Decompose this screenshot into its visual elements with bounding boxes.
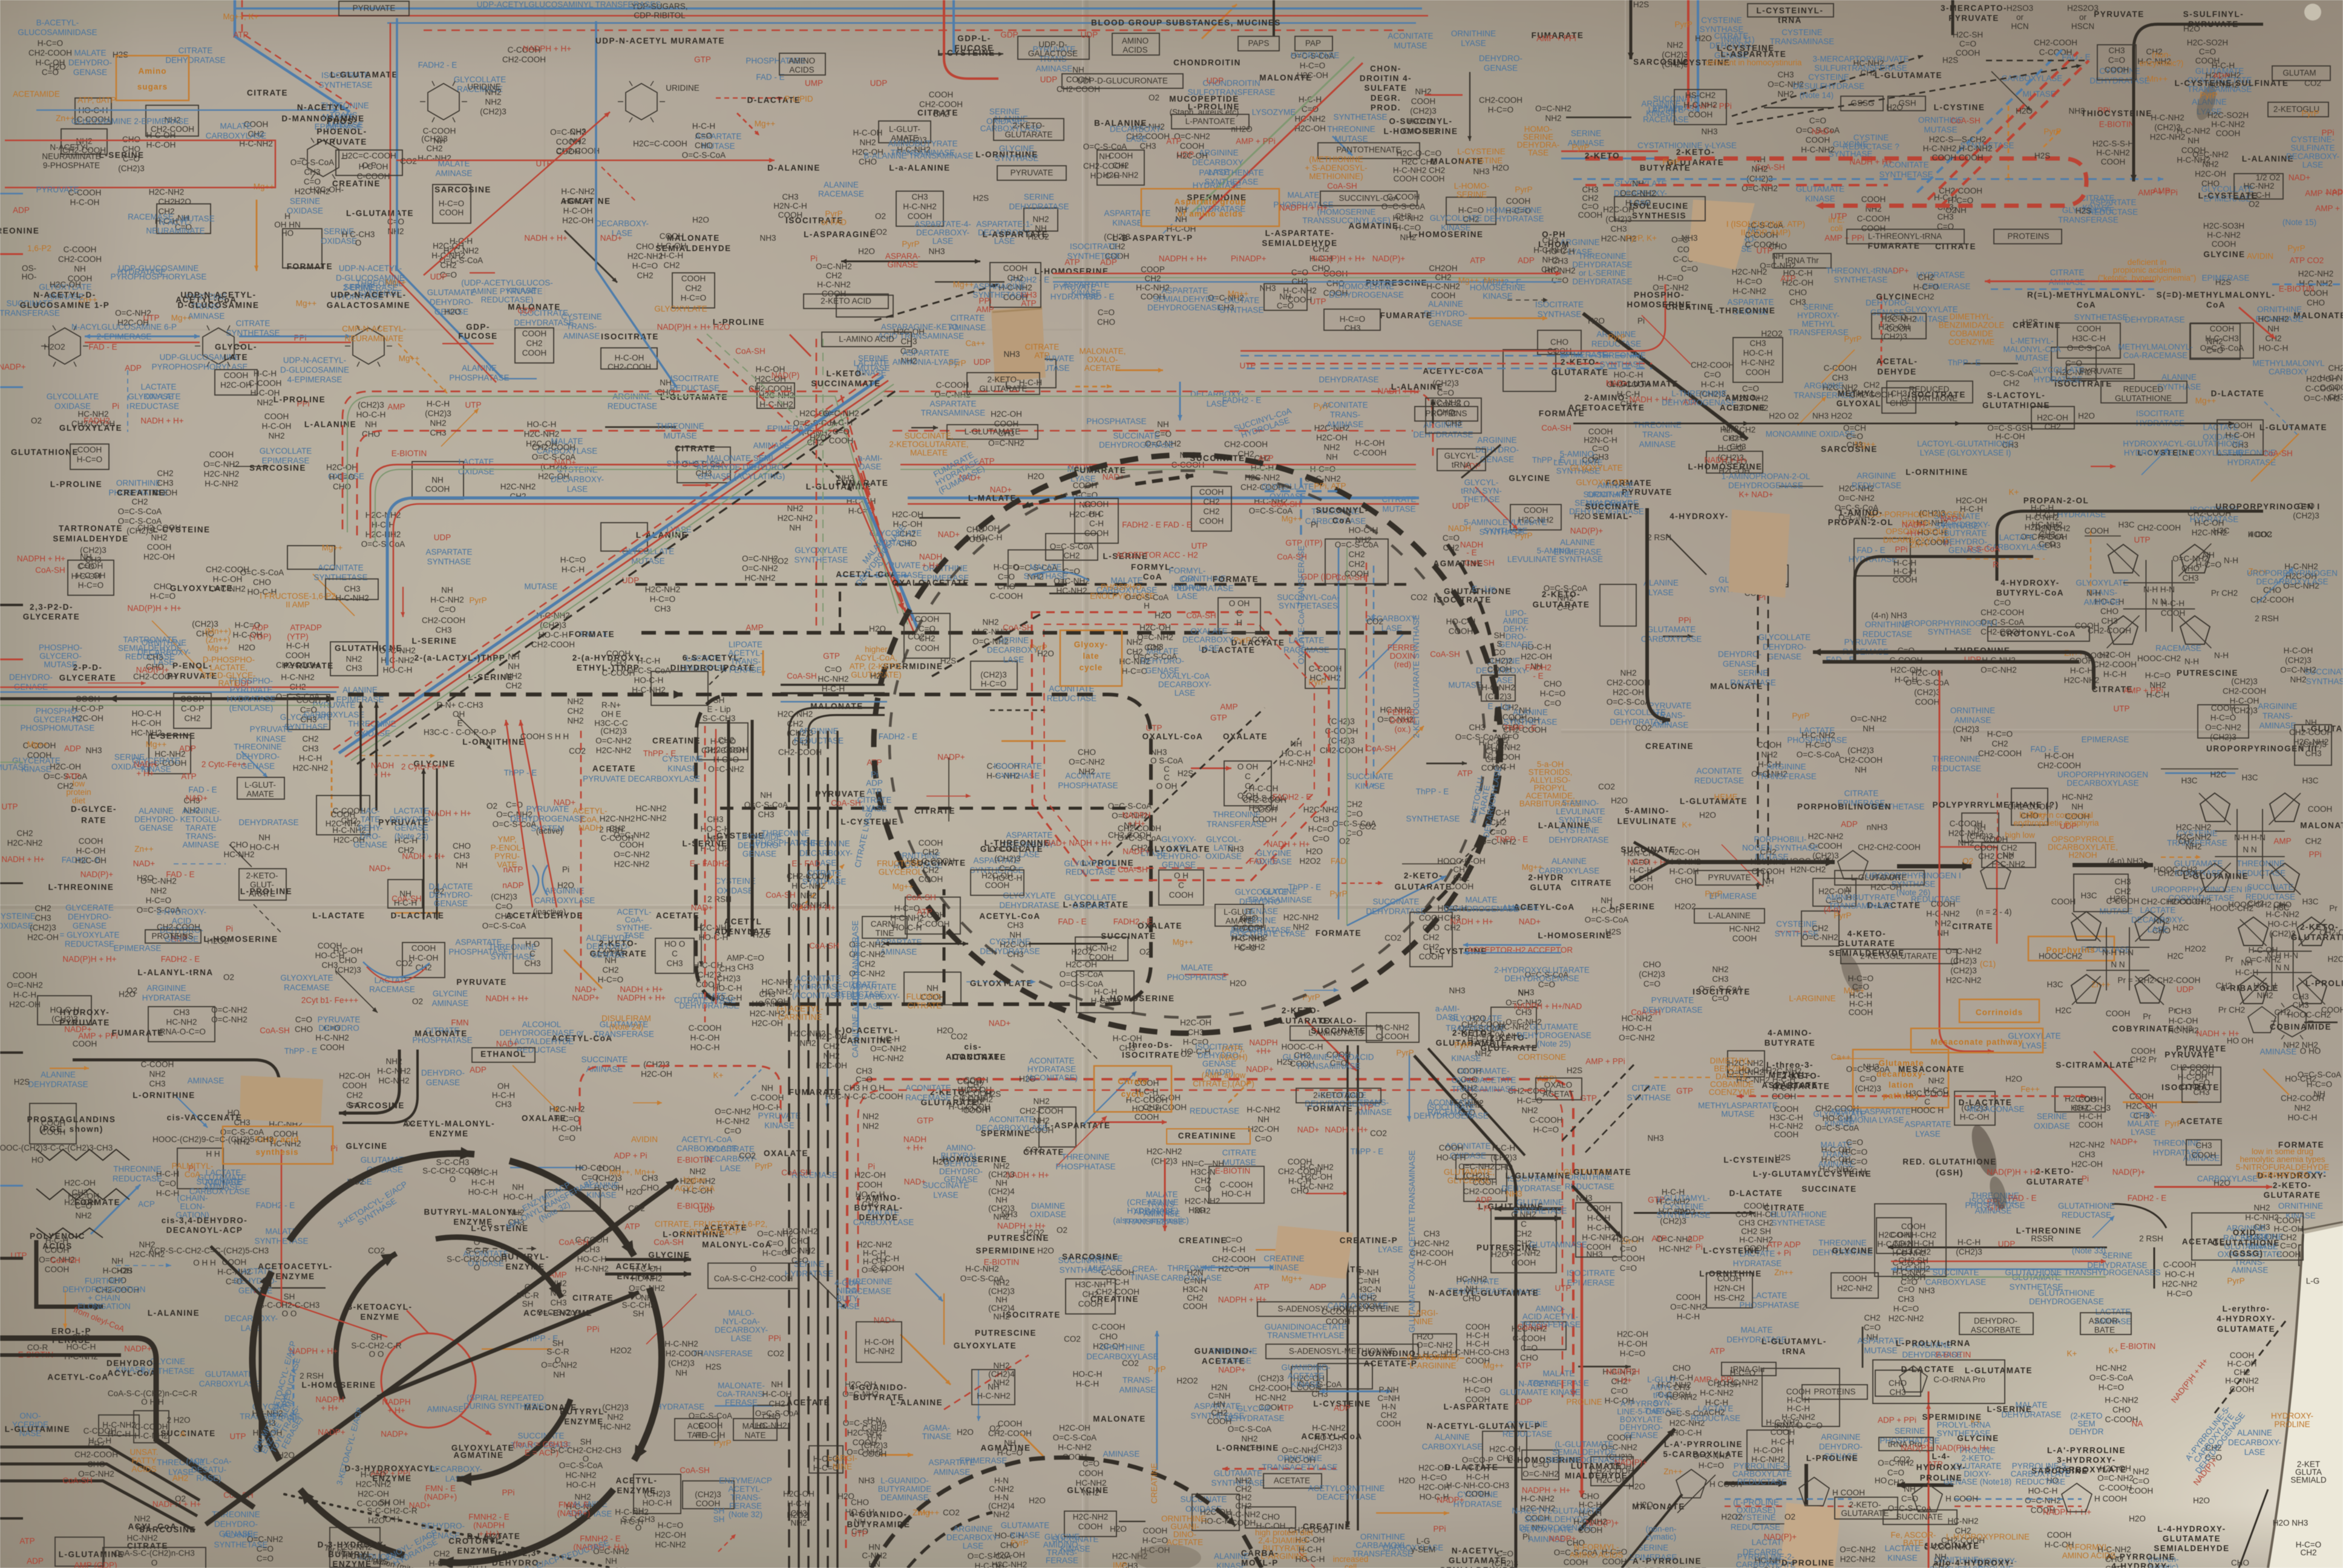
svg-text:NADP+: NADP+ <box>1122 847 1150 856</box>
svg-text:FADH2 - E: FADH2 - E <box>418 60 457 70</box>
svg-text:PPi: PPi <box>586 1325 599 1334</box>
svg-text:Pr: Pr <box>2143 1012 2151 1021</box>
svg-text:in E.coli: in E.coli <box>1828 215 1844 233</box>
svg-text:CoA-SH: CoA-SH <box>392 894 422 903</box>
svg-text:H-C-OHHC-NH2: H-C-OHHC-NH2 <box>863 1338 894 1356</box>
svg-text:allo-4-HYDROXY-D-PROLINE: allo-4-HYDROXY-D-PROLINE <box>1934 1558 2014 1568</box>
svg-text:ATP: ATP <box>1064 258 1080 267</box>
svg-text:GLYOXYLATE: GLYOXYLATE <box>954 1341 1017 1350</box>
svg-text:UROPORPHYRINOGENDECARBOXYLASE: UROPORPHYRINOGENDECARBOXYLASE <box>2057 770 2148 788</box>
svg-text:PROTEINS: PROTEINS <box>1814 1387 1855 1396</box>
svg-text:ADP: ADP <box>27 1557 44 1566</box>
svg-text:(+) ACETYL-CARNITINE: (+) ACETYL-CARNITINE <box>777 1004 824 1022</box>
svg-text:DEHYDRO-GENASE: DEHYDRO-GENASE <box>421 1068 465 1087</box>
svg-text:PYRROLINE-5-CARBOXYLATEREDUCTA: PYRROLINE-5-CARBOXYLATEREDUCTASE <box>2011 1462 2071 1486</box>
svg-text:CHOCH3: CHOCH3 <box>1889 1379 1907 1397</box>
svg-text:4-GUANIDO-BUTYRAMIDE: 4-GUANIDO-BUTYRAMIDE <box>847 1510 911 1529</box>
svg-text:UDP-N-ACETYL-D-GLUCOSAMINE2-EP: UDP-N-ACETYL-D-GLUCOSAMINE2-EPIMERASE <box>336 264 405 292</box>
svg-text:NADH + H+: NADH + H+ <box>428 809 471 818</box>
svg-text:PyrP: PyrP <box>469 596 487 605</box>
svg-text:NH2NH2: NH2NH2 <box>862 1112 879 1131</box>
svg-text:ADP: ADP <box>1309 1282 1326 1292</box>
svg-text:KINASE: KINASE <box>1451 1054 1481 1063</box>
svg-text:NAD+: NAD+ <box>133 859 156 868</box>
svg-text:H2S: H2S <box>117 1266 133 1275</box>
svg-text:L-GLUTAMATE: L-GLUTAMATE <box>965 427 1021 436</box>
svg-text:ACCEPTOR ACC - H2: ACCEPTOR ACC - H2 <box>1116 550 1198 560</box>
svg-text:H2C: H2C <box>2167 952 2183 961</box>
svg-text:L-ALANINE: L-ALANINE <box>148 1308 200 1318</box>
svg-text:HOMOSERINEDEHYDRATASE: HOMOSERINEDEHYDRATASE <box>1484 206 1544 223</box>
svg-text:S-LACTOYL-GLUTATHIONE: S-LACTOYL-GLUTATHIONE <box>1982 391 2050 410</box>
svg-text:(METHIONINE+ S-ADENOSYL-METHIO: (METHIONINE+ S-ADENOSYL-METHIONINE) <box>1305 155 1367 181</box>
svg-text:CITRATE LYASE: CITRATE LYASE <box>674 996 736 1005</box>
svg-text:K+ NAD+: K+ NAD+ <box>1738 490 1773 499</box>
svg-text:PyrP: PyrP <box>2200 91 2217 100</box>
svg-text:HOOC-CH2: HOOC-CH2 <box>2287 1010 2331 1019</box>
svg-text:PyrP: PyrP <box>1454 1040 1472 1050</box>
svg-text:HO: HO <box>31 1155 44 1165</box>
svg-text:BUTYRYL-ENZYME: BUTYRYL-ENZYME <box>501 1252 549 1272</box>
svg-text:CH2: CH2 <box>2215 981 2232 990</box>
svg-text:PYRUVATE: PYRUVATE <box>36 185 79 194</box>
svg-text:H2O: H2O <box>1611 796 1628 805</box>
svg-text:ADP + Pi: ADP + Pi <box>614 1151 647 1160</box>
svg-text:GLYOXYLATESYNTHETASE: GLYOXYLATESYNTHETASE <box>794 546 848 564</box>
svg-text:H2O2: H2O2 <box>610 1346 631 1355</box>
svg-text:NH3: NH3 <box>858 1476 874 1485</box>
svg-text:2 H2O: 2 H2O <box>166 1416 190 1425</box>
svg-text:ADP: ADP <box>1334 1403 1351 1413</box>
svg-text:H2O: H2O <box>2193 1496 2210 1505</box>
svg-text:ADP+ Pi: ADP+ Pi <box>1687 1234 1704 1252</box>
svg-text:CoA-SH: CoA-SH <box>765 890 796 900</box>
svg-text:O=CHC=OCH3: O=CHC=OCH3 <box>1843 423 1866 449</box>
svg-text:H2O2: H2O2 <box>1674 902 1696 911</box>
svg-text:CH2-COOH: CH2-COOH <box>2158 869 2201 878</box>
svg-text:OXALOACETAT: OXALOACETAT <box>1542 1080 1573 1099</box>
svg-text:NADH + H+: NADH + H+ <box>792 903 835 912</box>
svg-text:UTP: UTP <box>851 1529 868 1538</box>
svg-text:P-LIPID: P-LIPID <box>784 94 813 103</box>
svg-text:THREONYL-tRNA-SYNTHETASE: THREONYL-tRNA-SYNTHETASE <box>1826 266 1896 284</box>
svg-text:PYRUVATEDEHYDRO: PYRUVATEDEHYDRO <box>318 1015 361 1033</box>
svg-text:PPi: PPi <box>1678 616 1691 625</box>
svg-text:L-THREONINE: L-THREONINE <box>0 226 39 235</box>
svg-text:CoA-SH: CoA-SH <box>735 347 765 356</box>
svg-text:H2S: H2S <box>973 194 989 203</box>
svg-text:PyrP: PyrP <box>1844 335 1861 344</box>
svg-text:CoA-SH: CoA-SH <box>781 1168 811 1177</box>
svg-text:COOHCO-NH-CH2CO-NH-CHCH3 CH2C: COOHCO-NH-CH2CO-NH-CHCH3 CH2CH2 SHH-C-NH… <box>1890 1222 1936 1282</box>
svg-text:PPi: PPi <box>1433 1524 1446 1534</box>
svg-text:NAD+: NAD+ <box>1297 1125 1320 1134</box>
svg-text:GLYOXYLATE: GLYOXYLATE <box>451 1443 514 1452</box>
svg-text:CARBOXYLASE: CARBOXYLASE <box>2197 1174 2258 1183</box>
svg-text:ACE-TATE: ACE-TATE <box>687 1422 707 1440</box>
svg-text:GLYCINE: GLYCINE <box>1876 292 1918 301</box>
svg-text:NADH+ H+: NADH+ H+ <box>371 761 394 779</box>
svg-text:ITACONATE: ITACONATE <box>952 1053 1006 1062</box>
svg-text:Pi: Pi <box>810 254 818 263</box>
svg-text:ISOCITRATESYNTHASE: ISOCITRATESYNTHASE <box>994 762 1042 780</box>
svg-text:H2C-OH: H2C-OH <box>50 280 81 289</box>
svg-text:CREATINE: CREATINE <box>652 736 701 745</box>
svg-text:D-LACTATEDEHYDRO-GENASE: D-LACTATEDEHYDRO-GENASE <box>428 882 473 908</box>
svg-text:COOHH-C-OHH-C=O: COOHH-C-OHH-C=O <box>76 561 106 590</box>
svg-text:PyrP: PyrP <box>1396 1048 1414 1057</box>
svg-text:(Note 33): (Note 33) <box>2072 1246 2106 1255</box>
svg-text:nATP: nATP <box>503 865 523 874</box>
svg-text:S-SULFINYL-PYRUVATE: S-SULFINYL-PYRUVATE <box>2183 10 2244 29</box>
svg-text:Ca++: Ca++ <box>965 339 985 348</box>
svg-text:2-KETO: 2-KETO <box>1585 151 1620 160</box>
svg-text:CITRATE: CITRATE <box>1571 878 1612 887</box>
svg-text:ALANINEDEHYDRO-GENASE: ALANINEDEHYDRO-GENASE <box>134 806 178 832</box>
svg-text:(ATP),(NADH): (ATP),(NADH) <box>1219 1044 1247 1062</box>
svg-text:NADP+: NADP+ <box>381 1429 408 1439</box>
svg-text:S-ADENOSYL-HOMOCYSTEINE: S-ADENOSYL-HOMOCYSTEINE <box>1277 1304 1399 1313</box>
svg-text:L-ORNITHINE: L-ORNITHINE <box>1216 1443 1279 1452</box>
svg-text:H2O2: H2O2 <box>2184 944 2206 953</box>
svg-text:H2O: H2O <box>2078 411 2095 420</box>
svg-text:PyrP: PyrP <box>1674 20 1692 29</box>
svg-text:NADH + H+: NADH + H+ <box>1849 157 1892 166</box>
svg-text:N-FORMYL-AMINO ACIDS: N-FORMYL-AMINO ACIDS <box>2062 1543 2116 1560</box>
svg-text:FAD - E: FAD - E <box>1058 917 1086 926</box>
svg-text:NAD(P)+: NAD(P)+ <box>136 665 169 675</box>
svg-text:PyrP: PyrP <box>1515 185 1532 194</box>
svg-text:O2: O2 <box>31 416 42 425</box>
svg-text:GLYOXYLATE: GLYOXYLATE <box>654 304 707 313</box>
svg-text:H2O: H2O <box>119 990 136 999</box>
svg-text:ISOCITRATE: ISOCITRATE <box>2161 1083 2220 1092</box>
svg-text:E - Lip: E - Lip <box>1472 584 1495 593</box>
svg-text:NADP+: NADP+ <box>1548 1534 1576 1543</box>
svg-text:ISOCITRATE LYASE: ISOCITRATE LYASE <box>1230 929 1305 938</box>
svg-text:DEHYDRO-GENASE: DEHYDRO-GENASE <box>9 673 53 691</box>
svg-text:H2O: H2O <box>1588 316 1605 325</box>
svg-text:AGMATINE: AGMATINE <box>561 197 611 206</box>
svg-text:CO2: CO2 <box>2304 79 2321 88</box>
svg-text:ATP: ATP <box>1166 137 1181 146</box>
svg-text:H3C: H3C <box>2302 776 2318 785</box>
svg-text:ACETATE: ACETATE <box>656 911 700 920</box>
svg-text:L-a-ALANINE: L-a-ALANINE <box>889 163 950 172</box>
svg-text:H2C: H2C <box>2172 923 2189 932</box>
svg-text:UDP: UDP <box>870 79 888 88</box>
svg-text:AMP + PPi: AMP + PPi <box>2123 686 2163 695</box>
svg-text:PHOSPHO-GLYCERO-MUTASE: PHOSPHO-GLYCERO-MUTASE <box>39 643 82 669</box>
svg-text:CoA-SH: CoA-SH <box>906 893 936 902</box>
svg-text:NAD+: NAD+ <box>600 234 623 243</box>
svg-text:a-AMI-DASE: a-AMI-DASE <box>1435 1004 1460 1022</box>
svg-text:NADP+: NADP+ <box>1239 254 1267 263</box>
svg-text:FAD - E: FAD - E <box>188 785 217 794</box>
svg-text:GLYCOLLATEHYDRATASE: GLYCOLLATEHYDRATASE <box>2032 365 2085 384</box>
svg-text:SUCCINYL-CoA: SUCCINYL-CoA <box>1339 194 1398 203</box>
svg-text:L-PROLYL-tRNA: L-PROLYL-tRNA <box>1896 1339 1971 1348</box>
svg-text:COOH: COOH <box>2075 621 2100 630</box>
svg-text:Pi: Pi <box>562 865 569 874</box>
svg-text:A'-PYRRO-LINE-5-CAR-BOXYLATEDE: A'-PYRRO-LINE-5-CAR-BOXYLATEDEHYDRO-GENA… <box>1617 1399 1665 1440</box>
svg-text:MALONATE SEMI-ALDEHYDE DEHYDRO: MALONATE SEMI-ALDEHYDE DEHYDRO-GENASE (A… <box>696 454 787 481</box>
svg-text:GLUTAMATE,GLYCEROL: GLUTAMATE,GLYCEROL <box>1444 1168 1495 1185</box>
svg-text:CITRATE: CITRATE <box>914 806 955 815</box>
svg-text:Mg++: Mg++ <box>146 740 167 749</box>
svg-text:NADPH + H+: NADPH + H+ <box>1522 1486 1570 1495</box>
svg-text:Pi: Pi <box>868 1162 875 1171</box>
svg-text:PAP: PAP <box>1305 39 1321 48</box>
svg-text:ATP: ATP <box>1278 1403 1293 1413</box>
svg-text:SARCOSINE: SARCOSINE <box>434 185 491 194</box>
svg-text:L-GLUTAMATE: L-GLUTAMATE <box>2301 724 2343 733</box>
svg-text:HYDROXY-PROLINE: HYDROXY-PROLINE <box>2271 1411 2313 1429</box>
svg-text:DEHYDRO-ACYL-CoA: DEHYDRO-ACYL-CoA <box>106 1359 157 1378</box>
svg-text:N-ACETYL-NEURAMINATE9-PHOSPHAT: N-ACETYL-NEURAMINATE9-PHOSPHATE <box>42 143 100 170</box>
svg-text:CH2: CH2 <box>2247 899 2264 908</box>
svg-text:PyrP: PyrP <box>1833 911 1851 920</box>
svg-text:(L-GLUTAMATESEMIALDEHYDEDEHYDR: (L-GLUTAMATESEMIALDEHYDEDEHYDROGENASE) <box>1545 1440 1623 1465</box>
svg-text:FRUCTOSE,GLYCEROL: FRUCTOSE,GLYCEROL <box>877 859 924 877</box>
svg-text:H2O: H2O <box>368 1516 385 1525</box>
svg-text:NAD+: NAD+ <box>2289 173 2311 182</box>
svg-text:GLYCINEOXIDASE: GLYCINEOXIDASE <box>1256 849 1292 866</box>
svg-text:H2O2: H2O2 <box>1071 947 1092 956</box>
svg-text:OXALATE: OXALATE <box>764 1149 808 1158</box>
svg-text:(4-n) NH3: (4-n) NH3 <box>2107 857 2143 866</box>
svg-text:L-PROLINE: L-PROLINE <box>2305 979 2343 988</box>
svg-text:PYRUVATEDEHYDRATASE: PYRUVATEDEHYDRATASE <box>1642 996 1702 1014</box>
svg-text:LACTATEDEHYDRO-GENASE(Note 23): LACTATEDEHYDRO-GENASE(Note 23) <box>390 806 433 841</box>
svg-text:cis-3,4-DEHYDRO-DECANOYL-ACP: cis-3,4-DEHYDRO-DECANOYL-ACP <box>162 1216 248 1235</box>
svg-text:H2O2: H2O2 <box>1721 1512 1742 1521</box>
svg-text:UROPORPYRINOGEN III: UROPORPYRINOGEN III <box>2206 744 2318 753</box>
svg-text:HO: HO <box>1959 1543 1971 1552</box>
svg-text:2-HYDROXYGLUTARATEDEHYDROGENAS: 2-HYDROXYGLUTARATEDEHYDROGENASE <box>1494 965 1590 983</box>
svg-text:GLYCINE: GLYCINE <box>1509 474 1550 483</box>
svg-text:CoA-SH: CoA-SH <box>559 1238 589 1247</box>
svg-text:ACONITATEMUTASE: ACONITATEMUTASE <box>1388 31 1433 50</box>
svg-text:(Mn++)(Zn++)Mg++: (Mn++)(Zn++)Mg++ <box>205 627 231 653</box>
svg-text:FUMARATE: FUMARATE <box>1380 311 1433 320</box>
svg-text:2 Cytc-Fe++: 2 Cytc-Fe++ <box>401 762 446 771</box>
svg-text:FADH2 - E: FADH2 - E <box>2128 1194 2167 1203</box>
svg-text:H3C: H3C <box>2181 776 2197 785</box>
svg-text:L-y-GLUTAMYLCYSTEINE: L-y-GLUTAMYLCYSTEINE <box>1753 1169 1872 1178</box>
svg-text:CoA-SH: CoA-SH <box>1186 611 1216 620</box>
svg-text:Mesaconate pathway: Mesaconate pathway <box>1930 1037 2023 1047</box>
svg-text:GTP: GTP <box>823 652 840 661</box>
svg-text:O=C-NH2O=C-NH2HC-NH2: O=C-NH2O=C-NH2HC-NH2 <box>742 554 778 583</box>
svg-text:N-ACETYL-GLUTAMATE: N-ACETYL-GLUTAMATE <box>1429 1289 1539 1298</box>
svg-text:ThPP - E: ThPP - E <box>1495 835 1529 844</box>
svg-text:DEHYDRO-ASCORBATE: DEHYDRO-ASCORBATE <box>1971 1316 2020 1334</box>
svg-text:CREA-TINASE: CREA-TINASE <box>1130 1264 1160 1282</box>
svg-text:UTP: UTP <box>1191 541 1208 550</box>
svg-text:PROLYL-tRNASYNTHETASE: PROLYL-tRNASYNTHETASE <box>1936 1420 1990 1438</box>
svg-text:C=OCHO: C=OCHO <box>1097 308 1115 327</box>
svg-text:PyrP: PyrP <box>2227 1276 2244 1285</box>
svg-text:2Cyt b1- Fe+++: 2Cyt b1- Fe+++ <box>301 996 358 1005</box>
svg-text:THREONINESYNTHASE: THREONINESYNTHASE <box>1597 351 1646 369</box>
svg-text:cis-VACCENATE: cis-VACCENATE <box>167 1113 243 1122</box>
svg-text:MALONATE: MALONATE <box>415 1029 468 1038</box>
svg-text:Mg++, Mn++: Mg++, Mn++ <box>1458 276 1505 285</box>
svg-text:ThPP - E: ThPP - E <box>643 749 677 758</box>
svg-text:COOHHO-C-H: COOHHO-C-H <box>973 524 1003 542</box>
svg-text:AMP + PPi: AMP + PPi <box>2315 204 2343 213</box>
svg-text:Pi: Pi <box>1637 316 1645 325</box>
svg-text:ADP: ADP <box>13 206 30 215</box>
svg-text:Pr: Pr <box>2168 1006 2177 1015</box>
svg-text:ACETYL-CoA: ACETYL-CoA <box>1301 1432 1362 1441</box>
svg-text:PyrP: PyrP <box>1705 889 1722 898</box>
svg-text:ACP: ACP <box>138 1200 155 1209</box>
svg-text:CoA-SH: CoA-SH <box>1118 865 1148 874</box>
svg-text:D-LACTATE: D-LACTATE <box>2211 389 2265 398</box>
svg-text:HOOC-CH2: HOOC-CH2 <box>2210 904 2253 913</box>
svg-text:NAD(P)H + H+: NAD(P)H + H+ <box>1987 1168 2040 1177</box>
svg-text:NAD(P)+: NAD(P)+ <box>1764 1532 1797 1541</box>
svg-text:L-PROLINE: L-PROLINE <box>274 395 326 404</box>
svg-text:H3C: H3C <box>2213 526 2229 535</box>
svg-text:CO2: CO2 <box>569 746 586 756</box>
svg-text:Mg++: Mg++ <box>1483 1361 1504 1370</box>
svg-text:NH3: NH3 <box>1647 1134 1663 1143</box>
svg-text:CoA-SH: CoA-SH <box>809 941 839 950</box>
svg-text:ARGININEHYDRATASE: ARGININEHYDRATASE <box>142 984 191 1002</box>
svg-text:OXALATE: OXALATE <box>522 1114 566 1123</box>
svg-text:CO2: CO2 <box>628 1204 645 1213</box>
svg-text:ASPARA-GINASE: ASPARA-GINASE <box>885 252 920 269</box>
svg-text:NAD+: NAD+ <box>874 1316 896 1325</box>
svg-text:NH3: NH3 <box>1001 1210 1017 1219</box>
svg-text:PyrP: PyrP <box>1571 143 1589 152</box>
svg-text:FMN: FMN <box>451 1018 468 1027</box>
svg-text:O2: O2 <box>487 802 497 811</box>
svg-text:threo-Ds-ISOCITRATE: threo-Ds-ISOCITRATE <box>1122 1040 1180 1060</box>
svg-text:Corrinoids: Corrinoids <box>1976 1008 2023 1017</box>
svg-text:H-C-HCH3CH3C=O: H-C-HCH3CH3C=O <box>1934 193 1957 231</box>
svg-text:ACETYL-CoACARBOXYLASE: ACETYL-CoACARBOXYLASE <box>677 1135 738 1153</box>
svg-text:CO2: CO2 <box>951 1032 968 1041</box>
svg-text:4-HYDROXY-BUTYRYL-CoA: 4-HYDROXY-BUTYRYL-CoA <box>1996 578 2064 598</box>
svg-text:OXALATE: OXALATE <box>1223 732 1268 741</box>
svg-text:2-KETOGLUTARATE SYNTHASE: 2-KETOGLUTARATE SYNTHASE <box>1412 615 1421 738</box>
svg-text:NAD+: NAD+ <box>1519 917 1541 926</box>
svg-text:LIPOATEACETYL-TRANS-FERASE: LIPOATEACETYL-TRANS-FERASE <box>728 640 762 675</box>
svg-text:(C1): (C1) <box>1980 959 1996 969</box>
svg-text:AMP: AMP <box>1220 702 1237 711</box>
svg-text:Mg++: Mg++ <box>296 299 317 308</box>
svg-text:GUANIDINO-ACETATE: GUANIDINO-ACETATE <box>1194 1347 1253 1366</box>
svg-text:ACETYL-ENZYME: ACETYL-ENZYME <box>616 1262 658 1281</box>
svg-text:H2O: H2O <box>1027 472 1044 481</box>
svg-text:NA: NA <box>2132 1419 2143 1428</box>
svg-text:NH3: NH3 <box>2176 1024 2192 1033</box>
svg-text:NADH + H+: NADH + H+ <box>1267 840 1309 849</box>
svg-text:PORPHOBILINOGEN: PORPHOBILINOGEN <box>1797 802 1892 811</box>
svg-text:LUTAMATEMIALDEHYDE: LUTAMATEMIALDEHYDE <box>1565 1462 1628 1480</box>
svg-text:ERO-L-PFERASE: ERO-L-PFERASE <box>51 1327 91 1345</box>
svg-text:NAD+: NAD+ <box>938 530 960 539</box>
svg-text:UDP-N-ACETYL MURAMATE: UDP-N-ACETYL MURAMATE <box>595 36 725 45</box>
svg-text:L-HOMOSERINE: L-HOMOSERINE <box>1538 931 1612 940</box>
svg-text:GLYOXYLATEREDUCTASE: GLYOXYLATEREDUCTASE <box>128 392 180 411</box>
svg-text:(-)O-ACETYL-CARNITINE: (-)O-ACETYL-CARNITINE <box>835 1026 899 1045</box>
svg-text:FADH2 - E: FADH2 - E <box>879 732 918 741</box>
svg-text:A'-PYRROLINE2-CARBOXYLATE: A'-PYRROLINE2-CARBOXYLATE <box>1627 1557 1707 1568</box>
svg-text:D-LACTATE: D-LACTATE <box>1729 1189 1783 1198</box>
svg-text:L-ASPARTATE-SEMIALDEHYDE: L-ASPARTATE-SEMIALDEHYDE <box>1262 229 1337 248</box>
svg-text:NAD(P)+: NAD(P)+ <box>1372 254 1405 263</box>
svg-text:Mg++, Mn++: Mg++, Mn++ <box>609 1168 656 1177</box>
svg-text:K+: K+ <box>713 1071 724 1080</box>
svg-text:R: R <box>1993 560 1999 569</box>
svg-text:L-ASPARAGINE: L-ASPARAGINE <box>804 230 876 239</box>
svg-text:CoA-SH: CoA-SH <box>1950 116 1981 125</box>
svg-text:AMP + PPi: AMP + PPi <box>1824 234 1864 243</box>
svg-text:(Note 11): (Note 11) <box>1721 35 1754 44</box>
svg-text:NADH + H+: NADH + H+ <box>1 855 44 864</box>
svg-text:NAD(P)H + H+ H2O: NAD(P)H + H+ H2O <box>657 322 730 332</box>
svg-text:MUTASE: MUTASE <box>524 582 557 591</box>
svg-text:FUMARATE: FUMARATE <box>1868 241 1921 250</box>
svg-text:CH2-CH2-COOH: CH2-CH2-COOH <box>1858 843 1921 852</box>
svg-text:ATP: ATP <box>1780 274 1795 283</box>
svg-text:O=C-NH2H2C-NH2: O=C-NH2H2C-NH2 <box>1840 1545 1876 1564</box>
svg-text:(CH2)3O=C-NH2H2C-NH2: (CH2)3O=C-NH2H2C-NH2 <box>595 727 632 755</box>
svg-text:L-4-HYDROXY-GLUTAMATESEMIALDEH: L-4-HYDROXY-GLUTAMATESEMIALDEHYDE <box>2154 1524 2229 1553</box>
svg-text:ACETAMIDE: ACETAMIDE <box>13 90 60 99</box>
svg-text:ADP(YDP): ADP(YDP) <box>249 623 272 641</box>
svg-text:O-PHL-HOM: O-PHL-HOM <box>1538 230 1570 249</box>
svg-text:CYSTEINEOXIDASE: CYSTEINEOXIDASE <box>715 877 756 895</box>
svg-text:O2: O2 <box>223 973 234 982</box>
svg-text:CO2: CO2 <box>347 1177 364 1186</box>
svg-text:SYNTHETASE: SYNTHETASE <box>2074 313 2128 322</box>
svg-text:Pr: Pr <box>2329 904 2338 913</box>
svg-text:MALONYL-CoA: MALONYL-CoA <box>702 1240 772 1249</box>
svg-text:CH2: CH2 <box>2178 837 2194 846</box>
svg-text:O2: O2 <box>875 212 886 221</box>
svg-text:CREATINE: CREATINE <box>1645 742 1694 751</box>
svg-text:CREATINE: CREATINE <box>1179 1236 1227 1245</box>
svg-text:H2O: H2O <box>1574 512 1591 521</box>
svg-text:H2C-OH-: H2C-OH- <box>310 185 344 194</box>
svg-text:(CREATININEHYDRATASE): (CREATININEHYDRATASE) <box>1127 1198 1178 1215</box>
svg-text:FAD - E: FAD - E <box>2030 745 2059 754</box>
svg-text:NADH + H+: NADH + H+ <box>485 994 528 1003</box>
svg-text:CO2: CO2 <box>1384 933 1401 942</box>
svg-text:SUCCINATE: SUCCINATE <box>1801 1184 1856 1194</box>
svg-text:1/2 O2: 1/2 O2 <box>2256 173 2281 182</box>
svg-text:HC-NH2HO-C-HO=C-NH2: HC-NH2HO-C-HO=C-NH2 <box>1619 1014 1655 1042</box>
svg-text:MUCOPEPTIDE: MUCOPEPTIDE <box>1169 94 1239 103</box>
svg-text:SPERMIDINE: SPERMIDINE <box>975 1246 1035 1255</box>
svg-text:L-CYSTEINE: L-CYSTEINE <box>1703 1246 1760 1255</box>
svg-text:HS-CH2H-C-NH2COOH: HS-CH2H-C-NH2COOH <box>1683 91 1717 119</box>
svg-text:PPi: PPi <box>502 1488 514 1497</box>
svg-text:PPi: PPi <box>2309 850 2321 859</box>
svg-text:ATP: ATP <box>1709 1347 1725 1356</box>
svg-text:SUCCINATE: SUCCINATE <box>1896 1512 1942 1521</box>
svg-text:H2S: H2S <box>14 1077 30 1086</box>
svg-text:GLUTATHIONEREDUCTASE: GLUTATHIONEREDUCTASE <box>2058 1201 2115 1220</box>
svg-text:1,6-P2: 1,6-P2 <box>27 244 51 253</box>
svg-text:SUCCINYL-CoA-SYNTHETASES: SUCCINYL-CoA-SYNTHETASES <box>1277 593 1340 610</box>
